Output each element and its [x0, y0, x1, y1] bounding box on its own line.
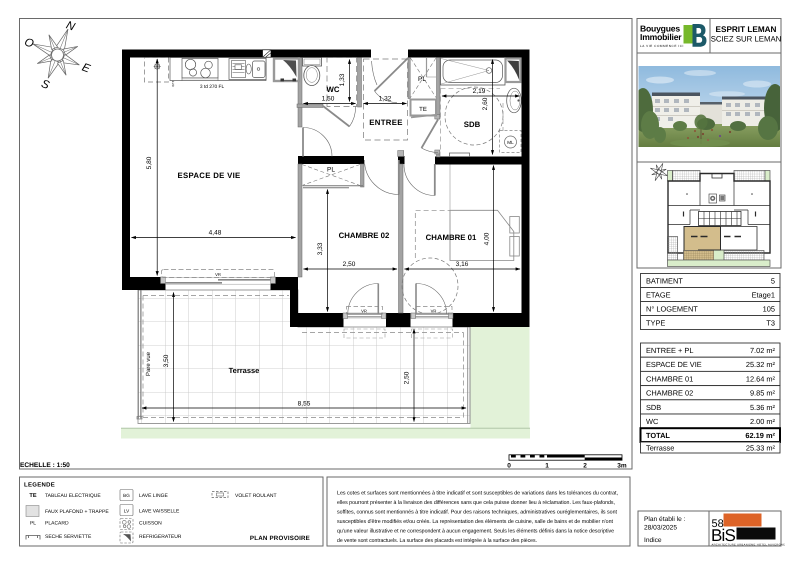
svg-text:7.02 m²: 7.02 m² [750, 346, 776, 355]
svg-text:WC: WC [646, 417, 659, 426]
svg-text:3,33: 3,33 [317, 242, 324, 255]
svg-text:Les cotes et surfaces sont men: Les cotes et surfaces sont mentionnées à… [337, 491, 618, 497]
svg-text:de vente sont contractuels. La: de vente sont contractuels. La surface d… [337, 538, 537, 544]
svg-text:PL: PL [30, 521, 36, 527]
svg-text:2,50: 2,50 [404, 371, 411, 384]
svg-text:2.00 m²: 2.00 m² [750, 417, 776, 426]
svg-text:Terrasse: Terrasse [646, 444, 674, 453]
svg-text:SECHE SERVIETTE: SECHE SERVIETTE [45, 534, 92, 540]
svg-text:LAVE VAISSELLE: LAVE VAISSELLE [139, 509, 180, 515]
svg-text:CHAMBRE 02: CHAMBRE 02 [646, 389, 693, 398]
svg-text:25.33 m²: 25.33 m² [746, 444, 776, 453]
svg-text:3,16: 3,16 [456, 261, 469, 268]
svg-text:4,48: 4,48 [209, 230, 222, 237]
svg-text:ESPRIT LEMAN: ESPRIT LEMAN [716, 25, 777, 34]
svg-text:Plan établi le :: Plan établi le : [644, 516, 686, 523]
svg-text:25.32 m²: 25.32 m² [746, 360, 776, 369]
svg-text:REFRIGERATEUR: REFRIGERATEUR [139, 534, 182, 540]
svg-text:TE: TE [419, 106, 427, 113]
svg-text:TABLEAU ELECTRIQUE: TABLEAU ELECTRIQUE [45, 493, 101, 499]
svg-text:5: 5 [771, 277, 775, 286]
svg-text:PL: PL [327, 167, 335, 174]
svg-text:LA VIE COMMENCE ICI: LA VIE COMMENCE ICI [640, 44, 684, 48]
svg-text:WC: WC [327, 85, 340, 94]
svg-text:PLACARD: PLACARD [45, 521, 69, 527]
svg-text:SDB: SDB [646, 403, 661, 412]
svg-text:N° LOGEMENT: N° LOGEMENT [646, 305, 698, 314]
svg-text:TOTAL: TOTAL [646, 431, 670, 440]
svg-text:BiS: BiS [711, 526, 736, 545]
svg-text:2,19: 2,19 [473, 88, 486, 95]
svg-text:elles pourront présenter à la: elles pourront présenter à la livraison … [337, 500, 615, 506]
svg-text:ESPACE DE VIE: ESPACE DE VIE [646, 360, 702, 369]
svg-text:ML: ML [507, 140, 514, 145]
svg-text:Indice: Indice [644, 537, 662, 544]
svg-text:5.36 m²: 5.36 m² [750, 403, 776, 412]
svg-text:1: 1 [545, 463, 549, 470]
svg-text:ENTREE: ENTREE [369, 118, 402, 127]
svg-text:CHAMBRE 01: CHAMBRE 01 [426, 233, 477, 242]
svg-text:3,50: 3,50 [163, 354, 170, 367]
svg-text:PLAN PROVISOIRE: PLAN PROVISOIRE [250, 535, 310, 542]
svg-text:T3: T3 [766, 319, 775, 328]
svg-text:VR: VR [361, 308, 367, 313]
svg-text:4,00: 4,00 [484, 232, 491, 245]
svg-text:105: 105 [763, 305, 775, 314]
svg-text:1,32: 1,32 [379, 96, 392, 103]
svg-text:CHAMBRE 02: CHAMBRE 02 [339, 231, 390, 240]
svg-text:ARCHITECTURE URBANISME HOTEL A: ARCHITECTURE URBANISME HOTEL AUVERGNE [712, 544, 786, 547]
svg-text:VR: VR [215, 272, 221, 277]
svg-text:12.64 m²: 12.64 m² [746, 374, 776, 383]
svg-text:CHAMBRE 01: CHAMBRE 01 [646, 374, 693, 383]
svg-text:0: 0 [507, 463, 511, 470]
svg-text:VR: VR [431, 308, 437, 313]
svg-text:3 td 270 FL: 3 td 270 FL [200, 84, 225, 90]
svg-text:SCIEZ SUR LEMAN: SCIEZ SUR LEMAN [711, 35, 782, 44]
svg-text:ENTREE + PL: ENTREE + PL [646, 346, 693, 355]
svg-text:TE: TE [29, 493, 36, 499]
svg-text:Etage1: Etage1 [752, 291, 775, 300]
svg-text:8,55: 8,55 [298, 401, 311, 408]
svg-text:VOLET ROULANT: VOLET ROULANT [235, 493, 277, 499]
svg-text:2,50: 2,50 [343, 261, 356, 268]
svg-text:62.19 m²: 62.19 m² [745, 431, 775, 440]
svg-text:BATIMENT: BATIMENT [646, 277, 683, 286]
svg-text:TYPE: TYPE [646, 319, 665, 328]
svg-text:Pare vue: Pare vue [145, 351, 152, 376]
svg-text:CUISSON: CUISSON [139, 521, 162, 527]
svg-text:PL: PL [418, 76, 426, 83]
svg-text:ESPACE DE VIE: ESPACE DE VIE [177, 171, 240, 180]
svg-text:Immobilier: Immobilier [640, 32, 682, 42]
svg-text:ETAGE: ETAGE [646, 291, 671, 300]
svg-text:ECHELLE : 1:50: ECHELLE : 1:50 [20, 462, 70, 469]
svg-text:5,80: 5,80 [146, 156, 153, 169]
svg-text:LEGENDE: LEGENDE [24, 482, 55, 489]
svg-text:28/03/2025: 28/03/2025 [644, 525, 677, 532]
svg-text:2: 2 [583, 463, 587, 470]
svg-text:2,60: 2,60 [482, 97, 489, 110]
svg-text:FAUX PLAFOND + TRAPPE: FAUX PLAFOND + TRAPPE [45, 509, 109, 515]
svg-text:1,50: 1,50 [322, 96, 335, 103]
svg-text:9.85 m²: 9.85 m² [750, 389, 776, 398]
svg-text:LAVE LINGE: LAVE LINGE [139, 493, 168, 499]
svg-text:1,33: 1,33 [339, 73, 346, 86]
svg-text:susceptibles d'être modifiés e: susceptibles d'être modifiés et/ou créés… [337, 519, 613, 525]
svg-text:Terrasse: Terrasse [229, 366, 260, 375]
svg-text:SDB: SDB [464, 120, 481, 129]
svg-text:soffites, connus sont mentionn: soffites, connus sont mentionnés à titre… [337, 510, 617, 516]
svg-text:3m: 3m [617, 463, 627, 470]
svg-text:qu'une valeur illustrative et: qu'une valeur illustrative et ne corresp… [337, 529, 614, 535]
svg-text:BG: BG [123, 493, 130, 498]
